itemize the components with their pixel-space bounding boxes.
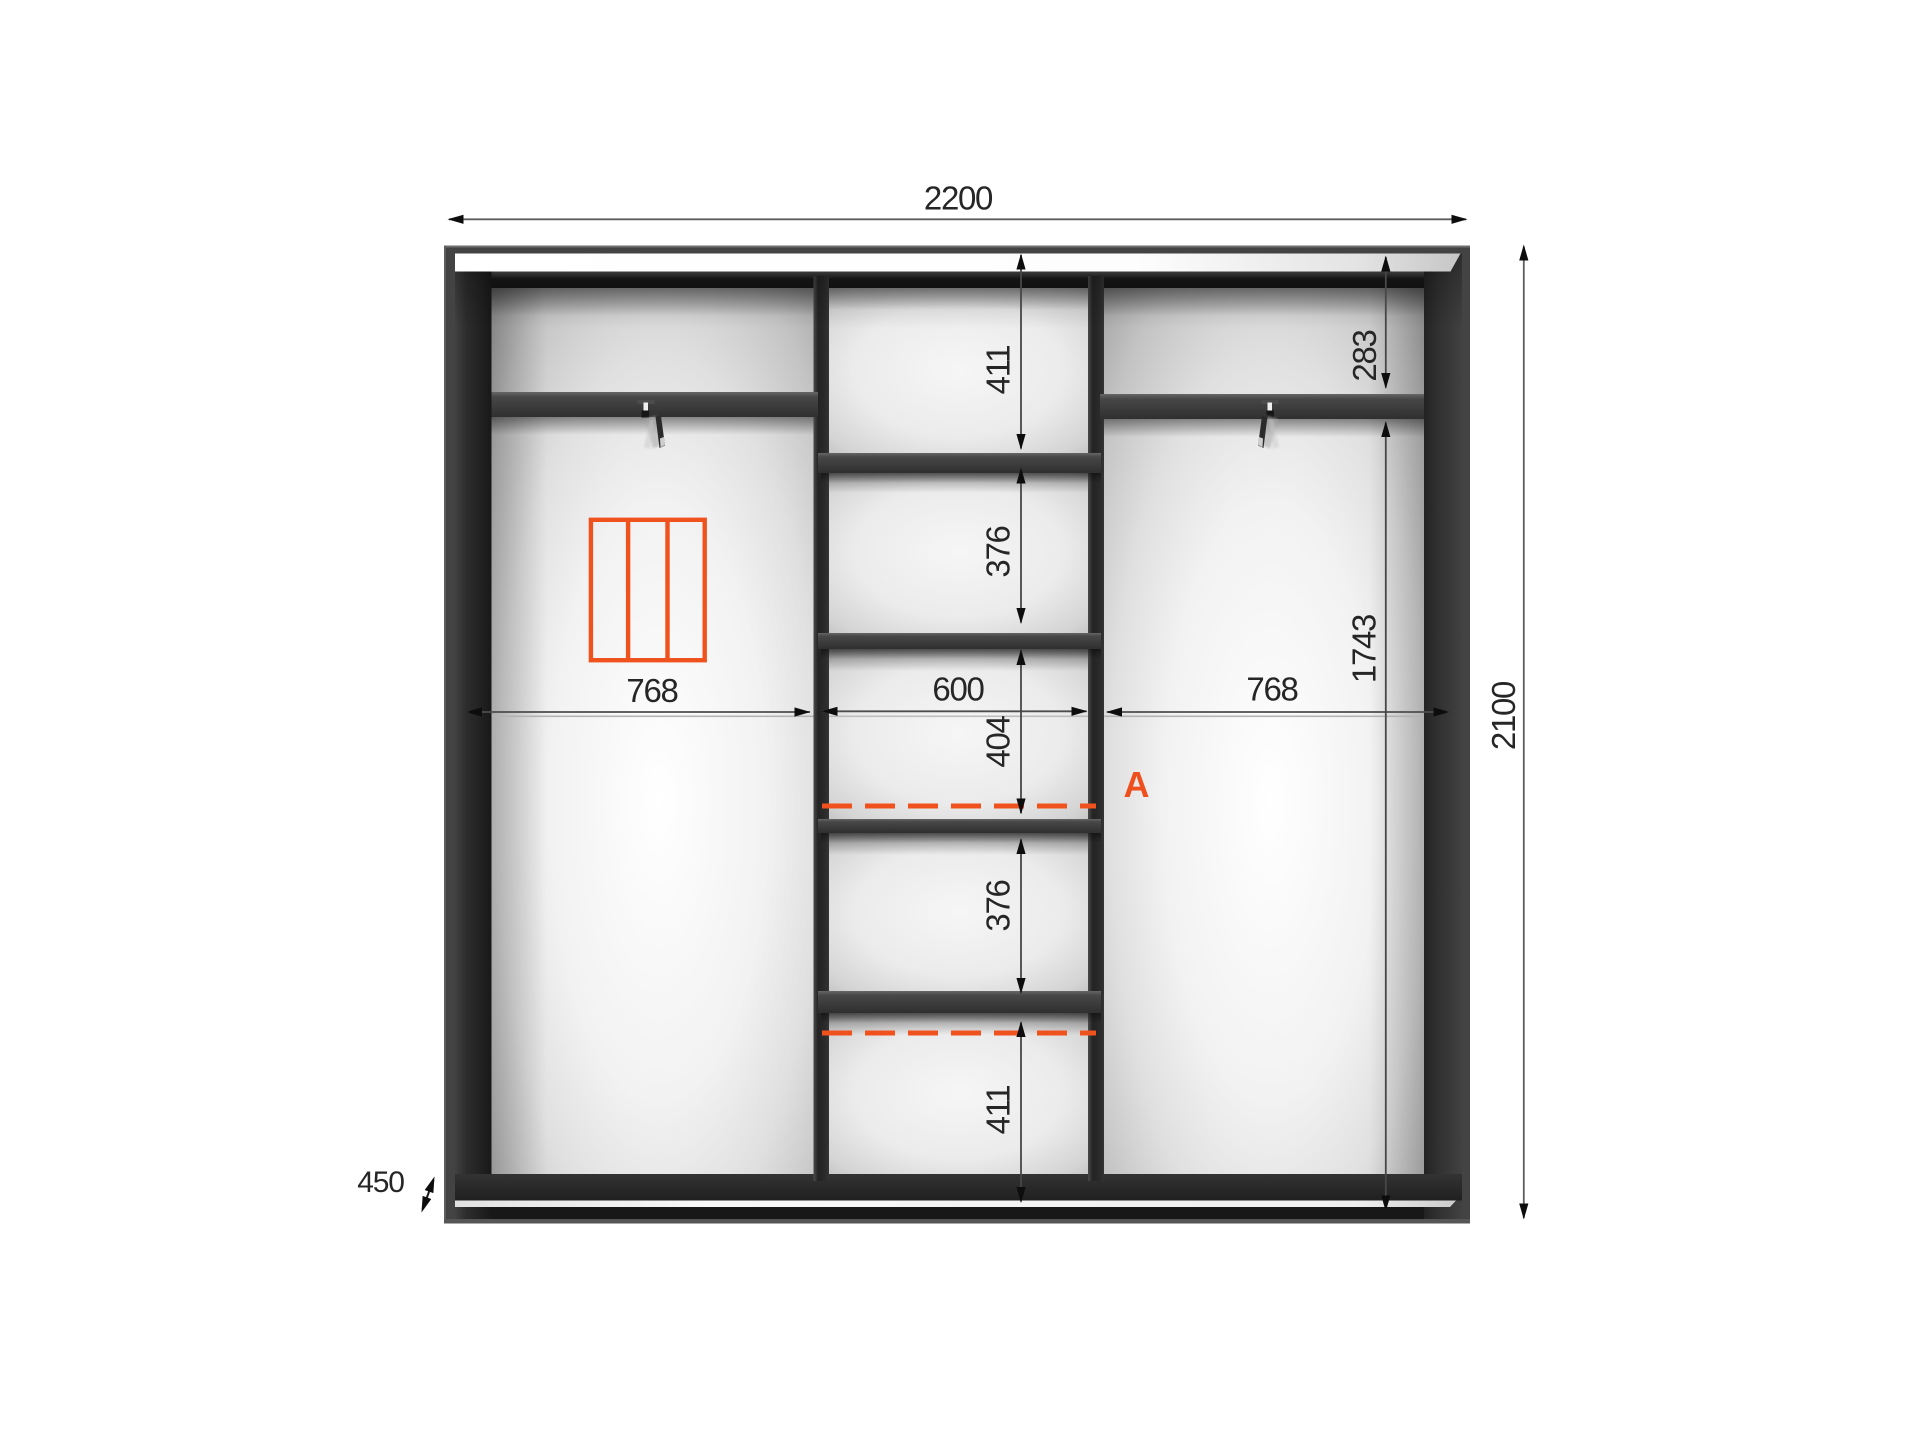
svg-text:283: 283 — [1346, 330, 1383, 381]
svg-text:768: 768 — [626, 672, 677, 709]
svg-text:411: 411 — [980, 346, 1017, 395]
svg-text:2100: 2100 — [1485, 681, 1522, 750]
svg-text:1743: 1743 — [1345, 615, 1382, 683]
svg-text:600: 600 — [932, 671, 984, 708]
svg-text:376: 376 — [980, 526, 1017, 577]
svg-text:2200: 2200 — [924, 180, 993, 217]
svg-text:404: 404 — [980, 715, 1017, 767]
svg-text:450: 450 — [357, 1166, 404, 1199]
svg-text:A: A — [1124, 764, 1150, 805]
svg-text:376: 376 — [980, 880, 1017, 931]
svg-text:768: 768 — [1246, 671, 1297, 708]
svg-text:411: 411 — [980, 1086, 1017, 1135]
